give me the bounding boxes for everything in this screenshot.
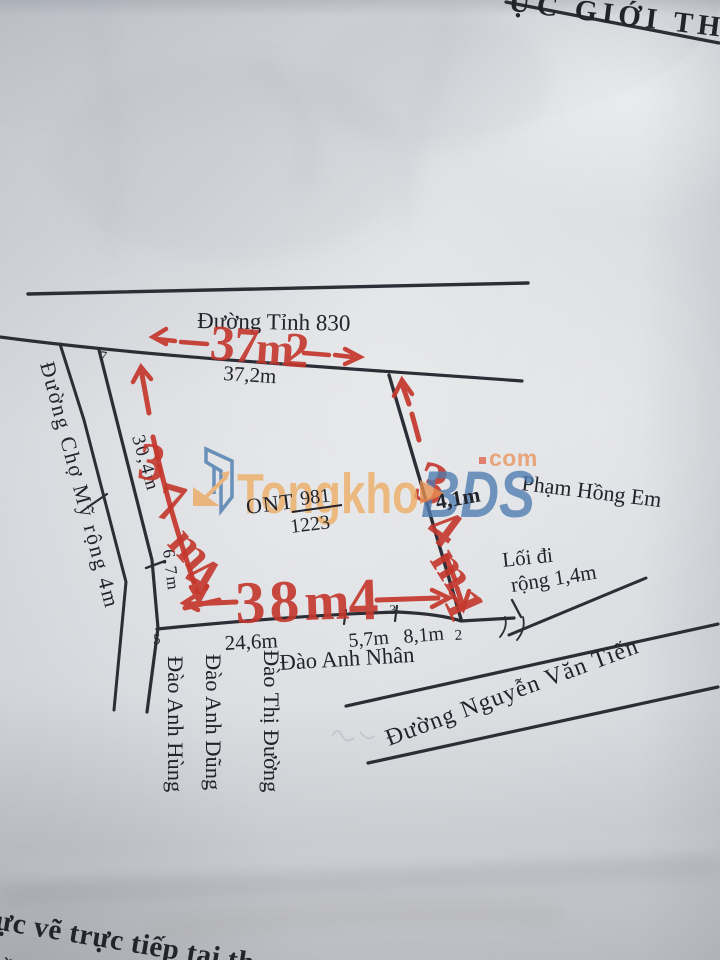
svg-text:981: 981: [299, 484, 331, 509]
svg-text:3: 3: [389, 602, 397, 617]
svg-text:m: m: [303, 570, 350, 632]
svg-text:5: 5: [153, 632, 161, 648]
svg-text:2: 2: [454, 628, 463, 644]
svg-text:Đào Anh Hùng: Đào Anh Hùng: [163, 656, 188, 792]
svg-text:2: 2: [282, 321, 311, 379]
svg-text:Đào Anh Dũng: Đào Anh Dũng: [201, 654, 226, 790]
svg-text:3: 3: [234, 569, 266, 636]
svg-text:Đào Thị Đường: Đào Thị Đường: [259, 650, 284, 792]
svg-text:com: com: [489, 445, 538, 471]
svg-text:8: 8: [268, 568, 300, 635]
svg-text:4: 4: [347, 566, 379, 633]
